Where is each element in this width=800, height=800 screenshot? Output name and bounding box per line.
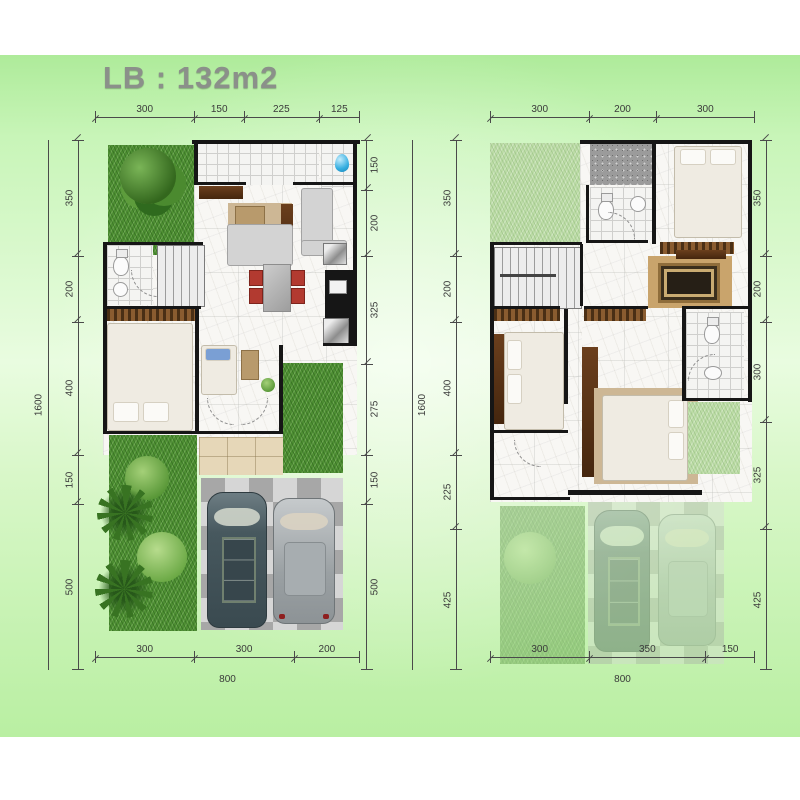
dimension-label: 400 — [443, 380, 454, 397]
dimension-label: 150 — [370, 157, 381, 174]
dimension-label: 200 — [589, 104, 655, 115]
dimension-segment: 150 — [194, 101, 244, 117]
potted-plant — [261, 378, 275, 392]
blue-pillow — [205, 348, 231, 361]
wall — [580, 244, 583, 306]
dimension-label: 150 — [194, 104, 244, 115]
dimension-label: 500 — [370, 579, 381, 596]
refrigerator — [323, 243, 347, 265]
dim-top-ground: 300150225125 — [95, 101, 360, 118]
wall — [192, 140, 360, 144]
wardrobe — [584, 309, 646, 321]
dimension-segment: 200 — [294, 641, 360, 657]
wall — [564, 309, 568, 404]
dimension-segment: 300 — [95, 101, 194, 117]
ground-floor-plan — [95, 140, 360, 670]
entry-path — [199, 437, 283, 475]
pillow — [507, 340, 522, 370]
wall — [682, 398, 748, 401]
dimension-segment: 500 — [367, 504, 383, 670]
dimension-label: 200 — [65, 281, 76, 298]
dimension-label: 300 — [753, 364, 764, 381]
den-table — [241, 350, 259, 380]
floorplan-poster: LB : 132m2 — [0, 0, 800, 800]
dim-total-label: 1600 — [34, 394, 45, 416]
pillow — [143, 402, 169, 422]
dim-left-ground: 350200400150500 — [62, 140, 79, 670]
dim-bottom-upper: 300350150 — [490, 641, 755, 658]
side-garden-faded — [688, 402, 740, 474]
taillight — [323, 614, 330, 619]
wall — [293, 182, 357, 185]
wall — [490, 242, 582, 245]
dimension-segment: 200 — [62, 256, 78, 322]
wall — [103, 306, 201, 309]
wall — [586, 185, 589, 243]
wall — [194, 140, 198, 185]
wall — [323, 343, 357, 346]
dimension-segment: 200 — [440, 256, 456, 322]
stair-rail — [500, 274, 556, 277]
pillow — [680, 149, 706, 165]
palm-plant — [95, 560, 153, 618]
dimension-segment: 350 — [440, 140, 456, 256]
dimension-segment: 150 — [62, 455, 78, 505]
dimension-segment: 300 — [656, 101, 755, 117]
dining-chair — [291, 288, 305, 304]
dimension-segment: 325 — [367, 256, 383, 364]
car-roof — [284, 542, 327, 596]
wall — [195, 431, 283, 434]
dimension-segment: 400 — [440, 322, 456, 455]
wardrobe — [494, 309, 560, 321]
dimension-label: 325 — [753, 467, 764, 484]
wall — [490, 497, 570, 500]
side-garden — [283, 363, 343, 473]
wall — [580, 140, 752, 144]
wall — [490, 430, 568, 433]
dimension-label: 400 — [65, 380, 76, 397]
dimension-segment: 500 — [62, 504, 78, 670]
dimension-label: 425 — [753, 591, 764, 608]
windshield — [600, 526, 643, 546]
dimension-label: 425 — [443, 591, 454, 608]
porch-floor — [195, 142, 319, 185]
car-roof — [608, 557, 640, 625]
toilet — [704, 324, 720, 344]
dim-total-height-right: 1600 — [412, 140, 413, 670]
wall — [279, 345, 283, 434]
dining-chair — [291, 270, 305, 286]
dimension-label: 350 — [589, 644, 705, 655]
dimension-label: 350 — [753, 190, 764, 207]
dimension-label: 150 — [705, 644, 755, 655]
dimension-label: 500 — [65, 579, 76, 596]
dimension-segment: 275 — [367, 364, 383, 455]
toilet — [113, 256, 129, 276]
wall — [584, 306, 648, 309]
dimension-segment: 325 — [750, 422, 766, 530]
prayer-cabinet — [676, 250, 726, 259]
dimension-label: 300 — [95, 104, 194, 115]
console-cabinet — [199, 186, 243, 199]
dining-chair — [249, 270, 263, 286]
dimension-segment: 125 — [319, 101, 360, 117]
dimension-label: 200 — [370, 214, 381, 231]
dimension-label: 200 — [294, 644, 360, 655]
pillow — [113, 402, 139, 422]
dim-right-upper: 350200300325425 — [750, 140, 767, 670]
dimension-label: 300 — [490, 644, 589, 655]
tree — [120, 148, 176, 204]
dining-chair — [249, 288, 263, 304]
windshield — [280, 513, 328, 530]
wardrobe — [107, 309, 195, 321]
taillight — [279, 614, 286, 619]
main-sofa — [227, 224, 293, 266]
dimension-label: 125 — [319, 104, 360, 115]
dimension-segment: 150 — [367, 140, 383, 190]
pillow — [668, 400, 684, 428]
dimension-segment: 150 — [705, 641, 755, 657]
dimension-label: 325 — [370, 301, 381, 318]
dimension-segment: 200 — [367, 190, 383, 256]
dim-top-upper: 300200300 — [490, 101, 755, 118]
wall — [159, 242, 203, 245]
dimension-label: 350 — [65, 190, 76, 207]
upper-floor-plan — [490, 140, 755, 670]
oven — [323, 318, 349, 344]
dimension-segment: 350 — [589, 641, 705, 657]
kitchen-sink — [329, 280, 347, 294]
wall — [194, 182, 246, 185]
dimension-segment: 425 — [440, 529, 456, 670]
dimension-label: 275 — [370, 401, 381, 418]
windshield — [665, 529, 710, 547]
dim-right-ground: 150200325275150500 — [366, 140, 383, 670]
upper-staircase — [494, 247, 582, 309]
ghost-shrub — [504, 532, 556, 584]
pillow — [668, 432, 684, 460]
dimension-segment: 300 — [194, 641, 293, 657]
wall — [682, 309, 686, 400]
car-roof — [668, 561, 708, 618]
headboard — [494, 334, 504, 424]
roof-garden-faded — [490, 143, 580, 243]
dimension-label: 200 — [753, 281, 764, 298]
dimension-segment: 200 — [750, 256, 766, 322]
wall — [103, 242, 107, 434]
page-title: LB : 132m2 — [103, 60, 278, 96]
dim-total-width-upper: 800 — [490, 674, 755, 685]
pillow — [710, 149, 736, 165]
car-dark — [207, 492, 267, 628]
prayer-rug — [658, 263, 720, 303]
dimension-segment: 225 — [440, 455, 456, 530]
wall — [652, 140, 656, 244]
dimension-label: 350 — [443, 190, 454, 207]
wall — [353, 140, 357, 346]
gravel-balcony — [590, 143, 654, 185]
windshield — [214, 508, 260, 527]
water-feature — [335, 154, 349, 172]
dimension-label: 300 — [194, 644, 293, 655]
dimension-segment: 225 — [244, 101, 319, 117]
dimension-segment: 350 — [62, 140, 78, 256]
dining-table — [263, 264, 291, 312]
dimension-label: 200 — [443, 281, 454, 298]
dimension-label: 300 — [95, 644, 194, 655]
dimension-label: 225 — [244, 104, 319, 115]
dimension-segment: 200 — [589, 101, 655, 117]
dimension-segment: 300 — [750, 322, 766, 421]
dimension-segment: 350 — [750, 140, 766, 256]
wall — [103, 242, 159, 245]
dimension-segment: 300 — [490, 101, 589, 117]
dimension-label: 150 — [65, 471, 76, 488]
dimension-segment: 425 — [750, 529, 766, 670]
wall — [568, 490, 702, 495]
palm-plant — [97, 485, 153, 541]
pillow — [507, 374, 522, 404]
staircase — [157, 245, 205, 307]
dim-total-width-ground: 800 — [95, 674, 360, 685]
dimension-label: 300 — [490, 104, 589, 115]
wall — [586, 240, 648, 243]
dimension-label: 150 — [370, 471, 381, 488]
wall — [490, 306, 560, 309]
washbasin — [113, 282, 128, 297]
wall — [490, 242, 494, 500]
car-roof — [222, 537, 256, 603]
wall — [103, 431, 199, 434]
dim-bottom-ground: 300300200 — [95, 641, 360, 658]
dimension-segment: 300 — [490, 641, 589, 657]
ghost-car-dark — [594, 510, 650, 652]
washbasin — [630, 196, 646, 212]
car-silver — [273, 498, 335, 624]
wall — [682, 306, 752, 309]
dim-total-label: 1600 — [417, 394, 428, 416]
ghost-car-silver — [658, 514, 716, 646]
dim-total-height-left: 1600 — [48, 140, 49, 670]
dimension-label: 225 — [443, 484, 454, 501]
dim-left-upper: 350200400225425 — [440, 140, 457, 670]
dimension-segment: 400 — [62, 322, 78, 455]
dimension-label: 300 — [656, 104, 755, 115]
coffee-table — [235, 206, 265, 226]
dimension-segment: 300 — [95, 641, 194, 657]
wall — [195, 306, 199, 434]
